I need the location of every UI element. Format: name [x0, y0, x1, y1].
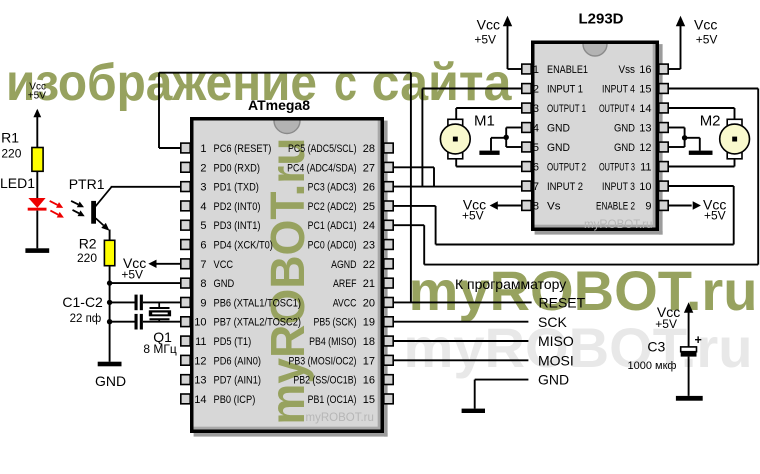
svg-text:11: 11 — [640, 162, 651, 174]
svg-text:К программатору: К программатору — [455, 276, 566, 292]
svg-text:14: 14 — [639, 103, 651, 115]
svg-text:21: 21 — [363, 278, 375, 290]
svg-text:AGND: AGND — [331, 259, 356, 271]
svg-text:GND: GND — [214, 278, 235, 290]
svg-text:PD1 (TXD): PD1 (TXD) — [214, 182, 259, 194]
svg-text:3: 3 — [533, 103, 539, 115]
svg-text:26: 26 — [363, 182, 375, 194]
svg-text:R1: R1 — [1, 130, 19, 146]
svg-text:Vcc: Vcc — [477, 17, 500, 33]
svg-text:28: 28 — [363, 143, 375, 155]
svg-text:OUTPUT 2: OUTPUT 2 — [547, 162, 586, 174]
svg-text:+5V: +5V — [462, 209, 484, 223]
svg-text:PD2 (INT0): PD2 (INT0) — [214, 201, 261, 213]
svg-text:6: 6 — [200, 240, 206, 252]
svg-text:4: 4 — [200, 201, 206, 213]
svg-text:PD6 (AIN0): PD6 (AIN0) — [214, 355, 262, 367]
svg-text:PC1 (ADC1): PC1 (ADC1) — [308, 220, 357, 232]
svg-text:PC0 (ADC0): PC0 (ADC0) — [308, 240, 357, 252]
svg-text:R2: R2 — [79, 236, 97, 252]
svg-text:9: 9 — [645, 201, 651, 213]
svg-text:GND: GND — [538, 372, 569, 388]
svg-text:5: 5 — [533, 142, 539, 154]
svg-text:22: 22 — [363, 259, 375, 271]
svg-text:PC6 (RESET): PC6 (RESET) — [214, 143, 272, 155]
svg-text:MISO: MISO — [538, 333, 574, 349]
svg-text:PC4 (ADC4/SDA): PC4 (ADC4/SDA) — [287, 162, 356, 174]
svg-text:24: 24 — [363, 220, 375, 232]
svg-text:GND: GND — [614, 142, 635, 154]
svg-text:GND: GND — [95, 373, 126, 389]
svg-text:22 пф: 22 пф — [70, 313, 102, 325]
svg-text:27: 27 — [363, 162, 375, 174]
svg-text:1: 1 — [200, 143, 206, 155]
svg-text:9: 9 — [200, 297, 206, 309]
svg-text:7: 7 — [533, 181, 539, 193]
svg-text:myROBOT.ru: myROBOT.ru — [584, 219, 652, 231]
svg-text:PC2 (ADC2): PC2 (ADC2) — [308, 201, 357, 213]
svg-text:OUTPUT 4: OUTPUT 4 — [599, 103, 635, 115]
svg-text:12: 12 — [194, 355, 206, 367]
svg-text:1: 1 — [533, 64, 539, 76]
svg-text:12: 12 — [639, 142, 651, 154]
svg-text:220: 220 — [77, 251, 97, 265]
svg-text:8: 8 — [533, 201, 539, 213]
svg-text:AVCC: AVCC — [333, 297, 357, 309]
svg-text:6: 6 — [533, 162, 539, 174]
svg-text:L293D: L293D — [578, 11, 623, 28]
svg-text:PD7 (AIN1): PD7 (AIN1) — [214, 375, 262, 387]
svg-text:7: 7 — [200, 259, 206, 271]
svg-text:PB7 (XTAL2/TOSC2): PB7 (XTAL2/TOSC2) — [214, 317, 302, 329]
svg-text:4: 4 — [533, 123, 539, 135]
svg-text:ENABLE1: ENABLE1 — [547, 64, 588, 76]
svg-text:LED1: LED1 — [0, 175, 35, 191]
svg-text:C1-C2: C1-C2 — [62, 294, 103, 310]
svg-text:11: 11 — [195, 336, 206, 348]
svg-text:14: 14 — [194, 394, 206, 406]
svg-text:ENABLE 2: ENABLE 2 — [596, 201, 635, 213]
svg-text:13: 13 — [639, 123, 651, 135]
svg-text:PC5 (ADC5/SCL): PC5 (ADC5/SCL) — [288, 143, 357, 155]
svg-text:myROBOT.ru: myROBOT.ru — [306, 412, 374, 424]
svg-text:2: 2 — [200, 162, 206, 174]
svg-text:23: 23 — [363, 240, 375, 252]
svg-text:PB2 (SS/OC1B): PB2 (SS/OC1B) — [293, 375, 356, 387]
svg-text:8 МГц: 8 МГц — [143, 342, 177, 356]
svg-text:1000 мкф: 1000 мкф — [628, 360, 677, 372]
svg-text:PB3 (MOSI/OC2): PB3 (MOSI/OC2) — [289, 355, 357, 367]
svg-text:13: 13 — [194, 375, 206, 387]
svg-text:Vs: Vs — [547, 201, 561, 213]
svg-text:220: 220 — [1, 147, 21, 161]
svg-text:M1: M1 — [474, 113, 495, 130]
svg-text:PD3 (INT1): PD3 (INT1) — [214, 220, 261, 232]
svg-text:ATmega8: ATmega8 — [248, 97, 310, 113]
svg-text:INPUT 3: INPUT 3 — [602, 181, 635, 193]
svg-text:16: 16 — [639, 64, 651, 76]
svg-text:Vss: Vss — [619, 64, 636, 76]
svg-text:+5V: +5V — [696, 33, 718, 47]
svg-text:PB6 (XTAL1/TOSC1): PB6 (XTAL1/TOSC1) — [214, 297, 302, 309]
svg-text:INPUT 2: INPUT 2 — [547, 181, 583, 193]
svg-text:5: 5 — [200, 220, 206, 232]
svg-text:+5V: +5V — [704, 209, 726, 223]
svg-text:OUTPUT 3: OUTPUT 3 — [599, 162, 635, 174]
svg-text:10: 10 — [639, 181, 651, 193]
svg-text:GND: GND — [614, 123, 635, 135]
svg-text:Vcc: Vcc — [694, 17, 717, 33]
svg-text:+5V: +5V — [121, 268, 143, 282]
svg-text:PD5 (T1): PD5 (T1) — [214, 336, 252, 348]
svg-text:18: 18 — [363, 336, 375, 348]
svg-text:20: 20 — [363, 297, 375, 309]
svg-text:PB5 (SCK): PB5 (SCK) — [314, 317, 357, 329]
svg-text:RESET: RESET — [539, 295, 586, 311]
svg-text:SCK: SCK — [538, 314, 567, 330]
svg-text:GND: GND — [547, 123, 570, 135]
svg-text:15: 15 — [639, 84, 651, 96]
svg-text:19: 19 — [363, 317, 375, 329]
svg-text:INPUT 1: INPUT 1 — [547, 84, 583, 96]
svg-text:PB4 (MISO): PB4 (MISO) — [309, 336, 356, 348]
svg-text:17: 17 — [363, 355, 375, 367]
svg-text:25: 25 — [363, 201, 375, 213]
svg-text:PD0 (RXD): PD0 (RXD) — [214, 162, 261, 174]
svg-text:PB1 (OC1A): PB1 (OC1A) — [308, 394, 357, 406]
svg-text:GND: GND — [547, 142, 570, 154]
svg-text:15: 15 — [363, 394, 375, 406]
svg-text:+: + — [695, 333, 702, 347]
svg-text:10: 10 — [194, 317, 206, 329]
svg-text:PTR1: PTR1 — [69, 176, 105, 192]
svg-text:3: 3 — [200, 182, 206, 194]
svg-text:+5V: +5V — [655, 317, 677, 331]
svg-text:OUTPUT 1: OUTPUT 1 — [547, 103, 586, 115]
svg-text:INPUT 4: INPUT 4 — [602, 84, 635, 96]
svg-text:myROBOT.ru: myROBOT.ru — [404, 316, 753, 379]
svg-text:+5V: +5V — [474, 33, 496, 47]
svg-text:PD4 (XCK/T0): PD4 (XCK/T0) — [214, 240, 273, 252]
svg-text:AREF: AREF — [333, 278, 357, 290]
svg-text:+5V: +5V — [28, 91, 46, 102]
svg-text:MOSI: MOSI — [538, 352, 574, 368]
svg-text:8: 8 — [200, 278, 206, 290]
svg-text:сайта: сайта — [372, 54, 513, 112]
svg-text:C3: C3 — [647, 339, 665, 355]
svg-text:с: с — [334, 54, 357, 112]
svg-text:M2: M2 — [700, 113, 721, 130]
svg-text:VCC: VCC — [214, 259, 234, 271]
svg-text:2: 2 — [533, 84, 539, 96]
svg-text:16: 16 — [363, 375, 375, 387]
svg-text:PC3 (ADC3): PC3 (ADC3) — [308, 182, 357, 194]
svg-text:PB0 (ICP): PB0 (ICP) — [214, 394, 256, 406]
